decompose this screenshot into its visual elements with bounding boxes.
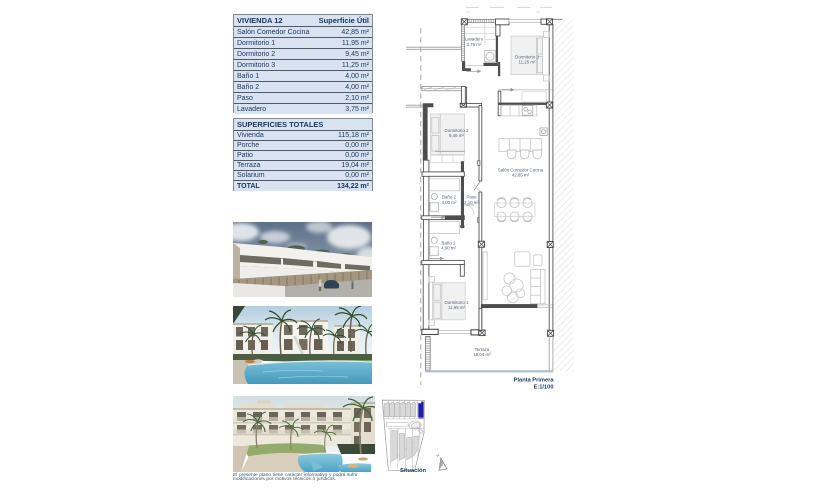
svg-text:42,85 m²: 42,85 m² xyxy=(512,173,530,178)
svg-text:2,10 m²: 2,10 m² xyxy=(464,200,479,205)
svg-text:E:1/100: E:1/100 xyxy=(534,384,554,390)
svg-text:Dormitorio 3: Dormitorio 3 xyxy=(515,54,539,59)
svg-text:4,00 m²: 4,00 m² xyxy=(441,246,456,251)
svg-text:N: N xyxy=(436,453,441,458)
svg-text:Dormitorio 2: Dormitorio 2 xyxy=(445,128,469,133)
svg-text:11,25 m²: 11,25 m² xyxy=(518,60,536,65)
svg-text:4,00 m²: 4,00 m² xyxy=(442,200,457,205)
svg-text:Paso: Paso xyxy=(466,195,477,200)
svg-text:11,95 m²: 11,95 m² xyxy=(448,305,466,310)
svg-text:Baño 1: Baño 1 xyxy=(442,240,456,245)
svg-text:Situación: Situación xyxy=(400,468,427,474)
svg-text:9,46 m²: 9,46 m² xyxy=(449,133,464,138)
svg-text:Baño 2: Baño 2 xyxy=(442,195,456,200)
svg-text:Salón Comedor Cocina: Salón Comedor Cocina xyxy=(498,167,544,172)
svg-text:19,04 m²: 19,04 m² xyxy=(473,352,491,357)
svg-text:Lavadero: Lavadero xyxy=(465,37,484,42)
svg-text:Planta Primera: Planta Primera xyxy=(514,378,555,384)
svg-text:Dormitorio 1: Dormitorio 1 xyxy=(445,300,469,305)
svg-text:Terraza: Terraza xyxy=(475,347,490,352)
svg-text:3,75 m²: 3,75 m² xyxy=(467,42,482,47)
